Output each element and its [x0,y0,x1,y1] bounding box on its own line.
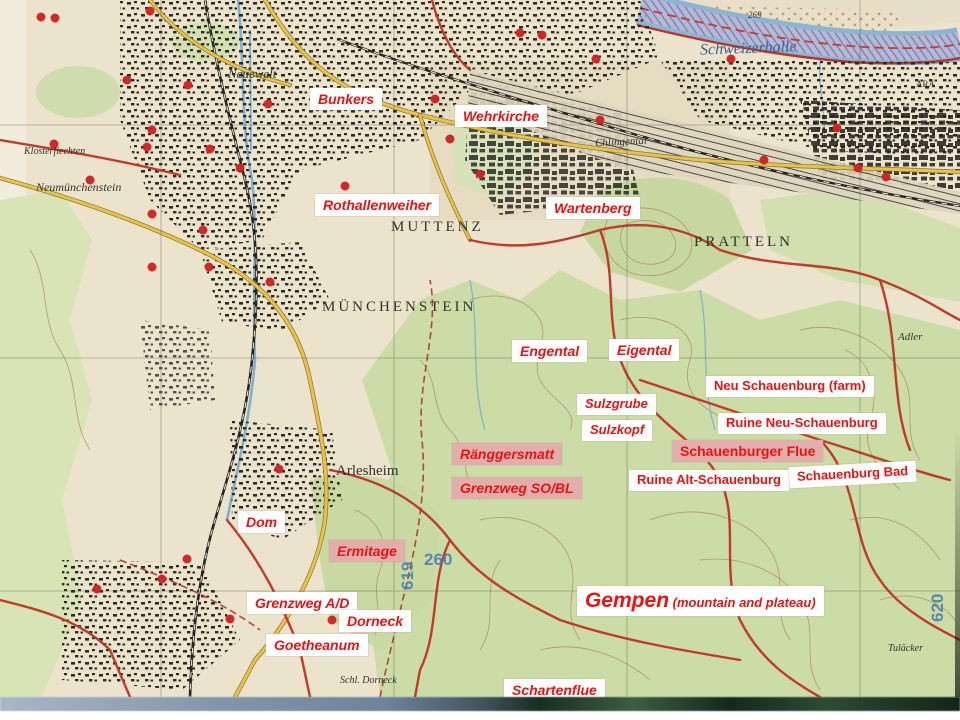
label-ruine-neu-schauenburg: Ruine Neu-Schauenburg [718,413,886,434]
label-dorneck: Dorneck [339,610,411,632]
grid-number-620: 620 [928,594,948,622]
label-ermitage: Ermitage [329,540,405,562]
map-name-269: 269 [748,10,762,20]
label-neu-schauenburg-farm: Neu Schauenburg (farm) [706,376,874,397]
map-name-arlesheim: Arlesheim [336,463,398,480]
map-name-tulacker: Tuläcker [888,643,923,654]
label-sulzgrube: Sulzgrube [577,394,656,415]
label-sulzkopf: Sulzkopf [582,420,652,441]
map-name-klosterfiechten: Klosterfiechten [24,146,85,157]
label-rothallenweiher: Rothallenweiher [315,194,439,216]
grid-number-260: 260 [424,550,452,570]
map-name-neumunchenstein: Neumünchenstein [36,180,121,195]
label-dom: Dom [238,511,285,533]
map-name-pratteln: PRATTELN [694,234,793,251]
grid-number-619: 619 [398,562,418,590]
label-bunkers: Bunkers [310,88,382,110]
label-wehrkirche: Wehrkirche [455,105,547,127]
label-gempen: Gempen (mountain and plateau) [577,586,824,616]
map-name-ara: ARA [916,79,935,89]
map-name-neuewelt: Neuewelt [228,66,276,82]
label-wartenberg: Wartenberg [546,197,640,219]
map-name-adler: Adler [898,331,922,343]
label-ruine-alt-schauenburg: Ruine Alt-Schauenburg [629,470,789,491]
label-gempen-main: Gempen [585,589,669,612]
label-ranggersmatt: Ränggersmatt [452,443,562,465]
label-schauenburger-flue: Schauenburger Flue [672,440,823,462]
photo-edge-strip [0,697,960,711]
annotated-map-slide: NeueweltKlosterfiechtenNeumünchensteinCh… [0,0,960,720]
label-goetheanum: Goetheanum [266,634,368,656]
map-name-munchenstein: MÜNCHENSTEIN [322,299,476,316]
label-engental: Engental [512,340,587,362]
map-name-muttenz: MUTTENZ [391,219,484,236]
label-gempen-sub: (mountain and plateau) [669,595,816,610]
photo-edge-shadow [955,430,960,697]
map-name-schl-dorneck: Schl. Dorneck [340,675,397,686]
map-name-schweizerhalle: Schweizerhalle [700,38,797,59]
label-grenzweg-sobl: Grenzweg SO/BL [452,477,582,499]
label-eigental: Eigental [609,339,679,361]
